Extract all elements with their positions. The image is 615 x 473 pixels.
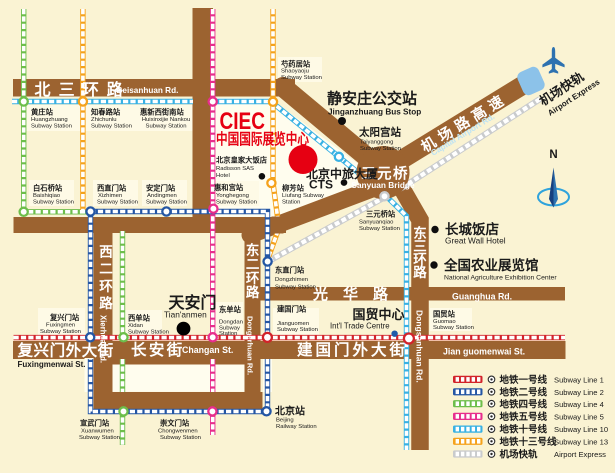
svg-text:Subway Station: Subway Station xyxy=(275,285,316,291)
svg-text:Subway Line 10: Subway Line 10 xyxy=(554,425,608,434)
svg-text:静安庄公交站: 静安庄公交站 xyxy=(327,90,417,108)
svg-text:东单站: 东单站 xyxy=(219,305,242,314)
svg-text:Station: Station xyxy=(219,331,237,337)
svg-text:路: 路 xyxy=(246,284,260,300)
svg-text:Subway Station: Subway Station xyxy=(33,200,74,206)
svg-text:Zhichunlu: Zhichunlu xyxy=(91,117,117,123)
svg-text:Huangzhuang: Huangzhuang xyxy=(31,117,68,123)
svg-text:Radisson SAS: Radisson SAS xyxy=(216,166,254,172)
svg-text:中国国际展览中心: 中国国际展览中心 xyxy=(216,130,309,148)
svg-text:西单站: 西单站 xyxy=(128,314,151,323)
svg-text:Jinganzhuang Bus Stop: Jinganzhuang Bus Stop xyxy=(328,108,421,117)
svg-text:环: 环 xyxy=(99,279,113,294)
svg-text:Subway Line 1: Subway Line 1 xyxy=(554,376,604,385)
svg-text:Subway Station: Subway Station xyxy=(277,327,318,333)
svg-text:Xizhimen: Xizhimen xyxy=(98,193,122,199)
svg-text:知春路站: 知春路站 xyxy=(90,108,121,117)
svg-text:路: 路 xyxy=(99,295,113,311)
svg-text:Dongsanhuan Rd.: Dongsanhuan Rd. xyxy=(415,310,425,383)
svg-text:惠和宫站: 惠和宫站 xyxy=(214,183,244,192)
svg-text:柳芳站: 柳芳站 xyxy=(282,184,305,193)
svg-text:国贸站: 国贸站 xyxy=(433,310,456,319)
svg-text:Jian guomenwai St.: Jian guomenwai St. xyxy=(443,347,525,357)
svg-text:环: 环 xyxy=(246,271,260,286)
svg-text:建国门站: 建国门站 xyxy=(276,305,307,314)
svg-text:Chongwenmen: Chongwenmen xyxy=(158,429,198,435)
svg-text:Railway Station: Railway Station xyxy=(276,424,317,430)
svg-text:崇文门站: 崇文门站 xyxy=(160,419,190,428)
svg-text:Tian'anmen: Tian'anmen xyxy=(164,310,207,320)
svg-text:二: 二 xyxy=(246,257,260,272)
svg-text:Yonghegong: Yonghegong xyxy=(216,193,249,199)
svg-text:二: 二 xyxy=(99,262,113,277)
svg-text:Changan St.: Changan St. xyxy=(182,345,233,355)
svg-text:安定门站: 安定门站 xyxy=(146,184,176,193)
svg-text:白石桥站: 白石桥站 xyxy=(33,184,63,193)
svg-text:Xierhuan Rd.: Xierhuan Rd. xyxy=(99,315,108,363)
svg-text:Fuxingmenwai St.: Fuxingmenwai St. xyxy=(18,360,86,369)
svg-text:惠新西街南站: 惠新西街南站 xyxy=(140,108,184,117)
svg-text:Subway Station: Subway Station xyxy=(359,226,400,232)
svg-text:Huixinxijie Nankou: Huixinxijie Nankou xyxy=(142,117,190,123)
svg-text:CTS: CTS xyxy=(309,178,333,192)
svg-text:Int'l Trade Centre: Int'l Trade Centre xyxy=(330,322,390,331)
svg-text:Shaoyaoju: Shaoyaoju xyxy=(281,69,309,75)
svg-text:Subway Line 2: Subway Line 2 xyxy=(554,388,604,397)
svg-text:Subway Line 4: Subway Line 4 xyxy=(554,400,604,409)
svg-text:Subway Station: Subway Station xyxy=(128,329,169,335)
svg-text:地铁十号线: 地铁十号线 xyxy=(500,424,548,436)
svg-text:Subway Station: Subway Station xyxy=(281,75,322,81)
svg-text:Subway Station: Subway Station xyxy=(216,200,257,206)
svg-text:地铁一号线: 地铁一号线 xyxy=(500,374,548,386)
svg-text:Subway Station: Subway Station xyxy=(79,435,120,441)
svg-text:机场快轨: 机场快轨 xyxy=(500,449,539,461)
svg-text:光华路: 光华路 xyxy=(312,285,403,303)
svg-text:北京站: 北京站 xyxy=(275,405,305,418)
svg-text:Subway Station: Subway Station xyxy=(146,200,187,206)
svg-text:Subway Station: Subway Station xyxy=(433,325,474,331)
svg-text:Fuxingmen: Fuxingmen xyxy=(46,323,75,329)
svg-text:Xuanwumen: Xuanwumen xyxy=(81,429,114,435)
svg-text:东: 东 xyxy=(246,242,260,258)
svg-text:宣武门站: 宣武门站 xyxy=(80,419,110,428)
svg-text:国贸中心: 国贸中心 xyxy=(353,307,405,322)
svg-text:Great Wall Hotel: Great Wall Hotel xyxy=(445,236,506,246)
svg-text:Subway Station: Subway Station xyxy=(97,200,138,206)
svg-text:N: N xyxy=(549,149,557,161)
svg-text:长城饭店: 长城饭店 xyxy=(445,221,499,237)
svg-text:Guomao: Guomao xyxy=(433,319,456,325)
svg-text:地铁四号线: 地铁四号线 xyxy=(500,398,548,410)
svg-text:太阳宫站: 太阳宫站 xyxy=(358,126,401,139)
svg-text:地铁十三号线: 地铁十三号线 xyxy=(500,436,558,448)
svg-text:Station: Station xyxy=(282,200,300,206)
svg-text:Subway Station: Subway Station xyxy=(91,123,132,129)
svg-text:Beisanhuan Rd.: Beisanhuan Rd. xyxy=(117,86,179,95)
svg-text:西直门站: 西直门站 xyxy=(97,184,127,193)
svg-text:Dongerhuan Rd.: Dongerhuan Rd. xyxy=(246,316,255,375)
svg-text:路: 路 xyxy=(413,264,427,280)
svg-text:地铁五号线: 地铁五号线 xyxy=(500,411,548,423)
svg-text:三元桥站: 三元桥站 xyxy=(366,210,396,219)
svg-text:Andingmen: Andingmen xyxy=(147,193,177,199)
svg-text:北京皇家大饭店: 北京皇家大饭店 xyxy=(216,156,268,165)
svg-text:Subway Station: Subway Station xyxy=(160,435,201,441)
svg-text:Hotel: Hotel xyxy=(216,173,230,179)
svg-text:Liufang Subway: Liufang Subway xyxy=(282,193,324,199)
svg-text:Taiyanggong: Taiyanggong xyxy=(360,140,393,146)
svg-text:Beijing: Beijing xyxy=(276,418,294,424)
svg-text:黄庄站: 黄庄站 xyxy=(31,108,54,117)
svg-text:Airport Express: Airport Express xyxy=(554,450,606,459)
svg-text:地铁二号线: 地铁二号线 xyxy=(500,386,548,398)
svg-text:芍药居站: 芍药居站 xyxy=(281,59,311,68)
svg-text:Subway Station: Subway Station xyxy=(146,123,187,129)
svg-text:西: 西 xyxy=(99,245,113,260)
svg-text:全国农业展览馆: 全国农业展览馆 xyxy=(443,257,539,273)
svg-text:Guanghua Rd.: Guanghua Rd. xyxy=(452,292,512,302)
svg-text:Subway Line 5: Subway Line 5 xyxy=(554,413,604,422)
svg-text:Sanyuan Bridge: Sanyuan Bridge xyxy=(351,180,415,190)
svg-text:Subway Station: Subway Station xyxy=(40,329,81,335)
svg-text:建国门外大街: 建国门外大街 xyxy=(297,340,408,359)
svg-text:Sanyuanqiao: Sanyuanqiao xyxy=(359,220,394,226)
svg-text:National Agriculture Exhibitio: National Agriculture Exhibition Center xyxy=(444,275,557,282)
svg-text:Baishiqiao: Baishiqiao xyxy=(33,193,61,199)
svg-text:东直门站: 东直门站 xyxy=(275,266,305,275)
svg-text:Subway Line 13: Subway Line 13 xyxy=(554,437,608,446)
svg-text:Subway Station: Subway Station xyxy=(360,146,401,152)
svg-text:Subway Station: Subway Station xyxy=(31,123,72,129)
svg-text:Xidan: Xidan xyxy=(128,323,143,329)
svg-text:Dongzhimen: Dongzhimen xyxy=(275,277,308,283)
svg-text:复兴门站: 复兴门站 xyxy=(49,313,80,322)
svg-text:长安街: 长安街 xyxy=(131,340,185,359)
